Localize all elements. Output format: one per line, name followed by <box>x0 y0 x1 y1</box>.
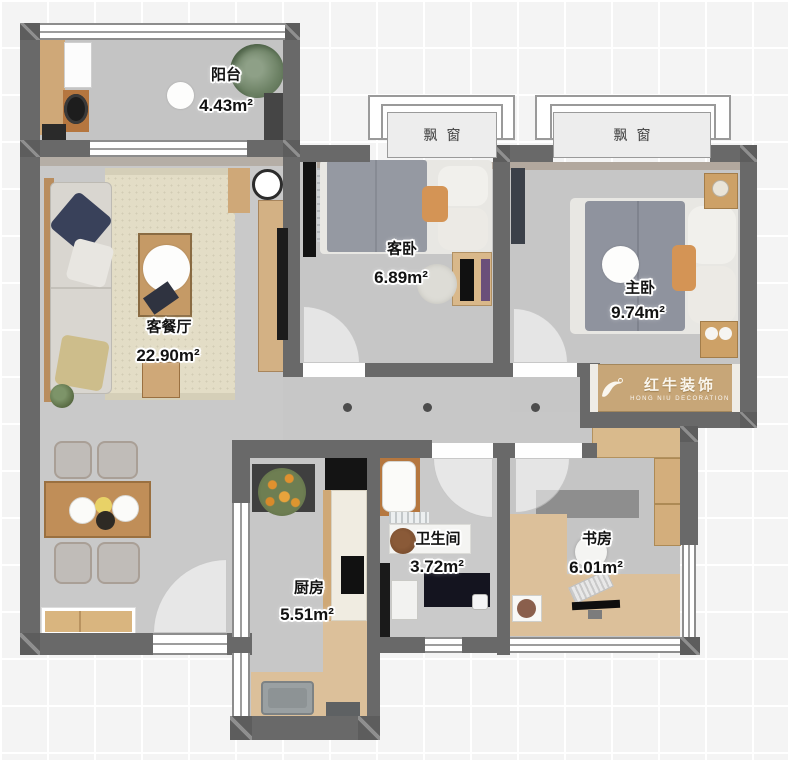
wall <box>300 145 370 162</box>
wall-corner-post <box>20 140 40 157</box>
wall <box>740 145 757 428</box>
door-threshold <box>515 443 582 458</box>
wall <box>20 23 40 655</box>
fridge <box>325 458 367 490</box>
wall-corner-post <box>740 145 757 162</box>
wall-panel <box>511 168 525 244</box>
washing-machine <box>64 94 88 124</box>
bay-window-text: 飘窗 <box>605 125 660 145</box>
window <box>40 23 285 40</box>
nightstand <box>700 321 738 358</box>
sideboard-doors <box>45 611 132 632</box>
laundry-cabinet <box>64 42 92 88</box>
wall <box>367 443 380 740</box>
dining-chair <box>97 441 138 479</box>
pillow-orange <box>422 186 448 222</box>
ceiling-light <box>167 82 194 109</box>
tray <box>96 511 115 530</box>
door-threshold <box>303 363 365 377</box>
wall-corner-post <box>20 23 40 40</box>
room-label-living: 客餐厅 <box>146 316 191 337</box>
pet <box>517 599 536 618</box>
window <box>232 653 250 716</box>
toilet <box>472 594 488 610</box>
room-label-balcony: 阳台 <box>211 64 241 85</box>
floor-plan: 红牛装饰 HONG NIU DECORATION <box>0 0 788 760</box>
counter-edge <box>323 490 331 621</box>
book <box>481 259 490 301</box>
bay-window-label: 飘窗 <box>553 112 711 158</box>
room-area-study: 6.01m² <box>569 558 623 578</box>
room-label-guest: 客卧 <box>387 238 417 259</box>
kitchen-counter-low <box>323 621 368 675</box>
keyboard <box>460 259 474 301</box>
kitchen-sliding-door <box>232 503 250 637</box>
wall <box>367 637 425 653</box>
wall-corner-post <box>230 716 252 740</box>
sink-basin <box>268 688 307 708</box>
room-area-kitchen: 5.51m² <box>280 605 334 625</box>
corridor-light-dot <box>343 403 352 412</box>
wall-corner-post <box>680 426 698 442</box>
wardrobe-dark <box>303 157 316 257</box>
wardrobe-end <box>732 364 740 412</box>
wood-floor <box>509 514 567 576</box>
room-label-study: 书房 <box>582 528 612 549</box>
window <box>510 637 680 653</box>
wall <box>365 363 513 377</box>
pillow-orange <box>672 245 696 291</box>
wall-corner-post <box>283 140 300 157</box>
bull-logo-icon <box>600 377 624 399</box>
corridor-light-dot <box>423 403 432 412</box>
room-label-kitchen: 厨房 <box>294 577 324 598</box>
curtain <box>40 157 283 166</box>
room-area-bathroom: 3.72m² <box>410 557 464 577</box>
decor <box>719 327 732 340</box>
balcony-dark-unit <box>42 124 66 140</box>
decor <box>705 327 718 340</box>
bathtub <box>382 461 416 512</box>
plant <box>50 384 74 408</box>
watermark-brand: 红牛装饰 <box>644 374 716 395</box>
bay-window-label: 飘窗 <box>387 112 497 158</box>
wall <box>462 637 510 653</box>
wall <box>283 363 303 377</box>
window <box>425 637 462 653</box>
shelf <box>228 168 250 213</box>
washing-machine <box>391 580 418 620</box>
vanity-sink <box>390 528 416 554</box>
entry-door <box>153 633 227 655</box>
room-area-living: 22.90m² <box>136 346 199 366</box>
wall <box>493 145 510 377</box>
wall <box>232 440 432 458</box>
dining-chair <box>54 542 92 584</box>
plate <box>112 495 139 522</box>
bay-window-text: 飘窗 <box>415 125 470 145</box>
wall-corner-post <box>680 637 700 655</box>
room-label-master: 主卧 <box>625 277 655 298</box>
balcony-cabinet <box>40 40 65 135</box>
wall-corner-post <box>740 412 757 428</box>
plate <box>69 497 96 524</box>
towel-rack <box>389 512 429 523</box>
wardrobe-end <box>590 364 598 412</box>
room-area-guest: 6.89m² <box>374 268 428 288</box>
wall <box>497 443 510 655</box>
bench <box>142 362 180 398</box>
room-area-master: 9.74m² <box>611 303 665 323</box>
window <box>682 545 696 637</box>
wall <box>680 426 698 545</box>
balcony-sliding-door <box>90 140 247 157</box>
round-mirror <box>252 169 283 200</box>
tv <box>277 228 288 340</box>
wall-corner-post <box>358 716 380 740</box>
watermark: 红牛装饰 HONG NIU DECORATION <box>598 366 732 410</box>
vase <box>712 180 729 197</box>
monitor-stand <box>588 610 602 619</box>
wall <box>580 412 757 428</box>
wall <box>582 443 597 458</box>
room-area-balcony: 4.43m² <box>199 96 253 116</box>
wardrobe <box>654 458 681 546</box>
dining-chair <box>54 441 92 479</box>
door-threshold <box>432 443 493 458</box>
watermark-subtitle: HONG NIU DECORATION <box>630 396 730 402</box>
dining-chair <box>97 542 140 584</box>
corridor-light-dot <box>531 403 540 412</box>
wall-corner-post <box>20 633 40 655</box>
room-label-bathroom: 卫生间 <box>415 528 460 549</box>
curtain <box>510 162 740 170</box>
door-threshold <box>513 363 577 377</box>
cooktop <box>341 556 364 594</box>
wall <box>232 440 250 503</box>
flower-plant <box>258 468 306 516</box>
wall-corner-post <box>283 23 300 40</box>
